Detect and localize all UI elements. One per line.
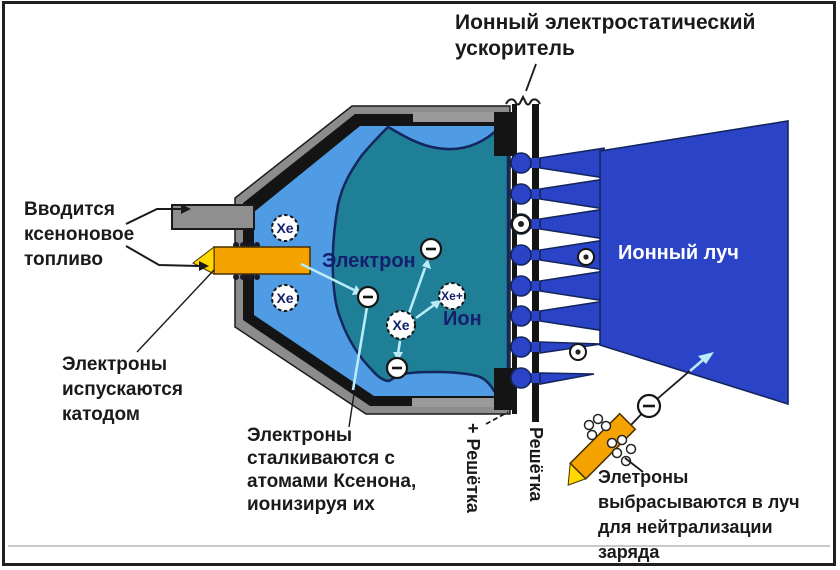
neutralizer-label: Элетроны выбрасываются в луч для нейтрал… [598, 465, 800, 565]
anode-bar-top [494, 112, 514, 156]
ion-jets [511, 148, 604, 388]
electron-particle [421, 239, 441, 259]
ion-label: Ион [443, 308, 482, 331]
xenon-ion: Xe+ [439, 283, 465, 309]
electron-particle [358, 287, 378, 307]
ion-dot [578, 249, 594, 265]
ion-thruster-diagram: Xe Xe [0, 0, 840, 570]
xenon-atom-lower: Xe [272, 285, 298, 311]
electron-particle [387, 358, 407, 378]
electron-label: Электрон [322, 250, 416, 273]
cathode-emission-label: Электроны испускаются катодом [62, 352, 183, 427]
xenon-atom-upper: Xe [272, 215, 298, 241]
negative-grid-label: - Решётка [525, 416, 546, 501]
accelerator-label: Ионный электростатический ускоритель [455, 10, 755, 62]
xenon-atom-center: Xe [387, 311, 415, 339]
ion-dot [570, 344, 586, 360]
cathode-tip [193, 247, 214, 274]
svg-text:Xe: Xe [276, 220, 293, 236]
svg-text:Xe+: Xe+ [441, 289, 463, 303]
grid-brace-squiggle [506, 97, 540, 105]
ion-dot [512, 215, 530, 233]
collision-label: Электроны сталкиваются с атомами Ксенона… [247, 424, 416, 516]
bottom-divider-line [8, 545, 830, 547]
top-wall-strip [413, 112, 503, 122]
svg-text:Xe: Xe [276, 290, 293, 306]
ion-beam-label: Ионный луч [618, 242, 739, 265]
positive-grid-label: + Решётка [462, 423, 483, 513]
bottom-wall-strip [412, 398, 496, 407]
cathode-rod [214, 247, 310, 274]
fuel-inlet-label: Вводится ксеноновое топливо [24, 197, 134, 272]
electron-particle [638, 395, 660, 417]
svg-text:Xe: Xe [392, 317, 409, 333]
